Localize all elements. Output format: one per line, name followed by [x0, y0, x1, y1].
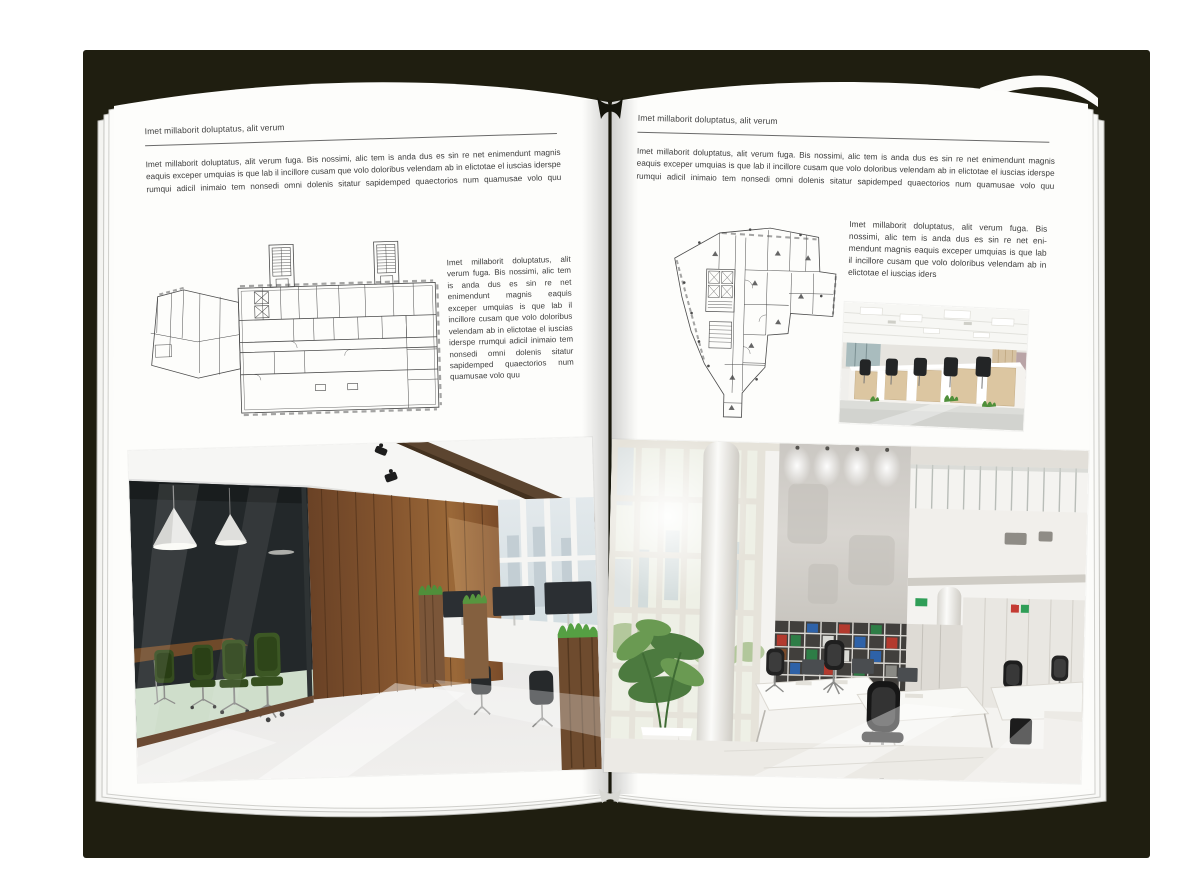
right-intro-paragraph: Imet millaborit doluptatus, alit verum f…	[636, 146, 1055, 205]
floor-plan-wide-building	[140, 217, 456, 424]
small-office-photo	[839, 302, 1028, 431]
dark-loft-office-photo	[128, 437, 602, 783]
left-page-header: Imet millaborit doluptatus, alit verum	[145, 122, 285, 136]
right-header-rule	[637, 132, 1049, 143]
right-side-column: Imet millaborit doluptatus, alit verum f…	[848, 218, 1047, 283]
left-header-rule	[145, 133, 557, 146]
left-page-content: Imet millaborit doluptatus, alit verum I…	[110, 85, 609, 799]
left-intro-paragraph: Imet millaborit doluptatus, alit verum f…	[146, 147, 562, 208]
bright-atrium-office-photo	[604, 439, 1089, 784]
left-side-column: Imet millaborit doluptatus, alit verum f…	[447, 254, 575, 383]
right-page-content: Imet millaborit doluptatus, alit verum I…	[604, 84, 1099, 795]
floor-plan-irregular-building	[644, 211, 843, 424]
right-page-header: Imet millaborit doluptatus, alit verum	[638, 113, 778, 126]
magazine-mockup: Imet millaborit doluptatus, alit verum I…	[0, 0, 1200, 891]
